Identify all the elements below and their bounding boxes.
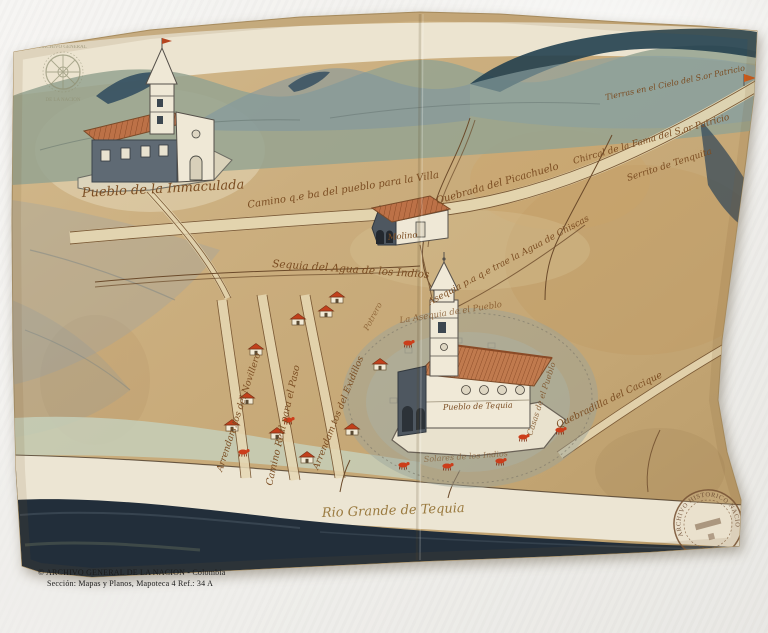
seal-text-bottom: DE LA NACION <box>46 98 81 103</box>
archive-caption-line1: © ARCHIVO GENERAL DE LA NACION - Colombi… <box>38 568 226 578</box>
photo-of-archival-map: ARCHIVO GENERAL DE LA NACION ARCHIVO HIS… <box>0 0 768 633</box>
archive-caption-line2: Sección: Mapas y Planos, Mapoteca 4 Ref.… <box>47 579 213 589</box>
map-artwork: ARCHIVO GENERAL DE LA NACION ARCHIVO HIS… <box>0 0 768 633</box>
